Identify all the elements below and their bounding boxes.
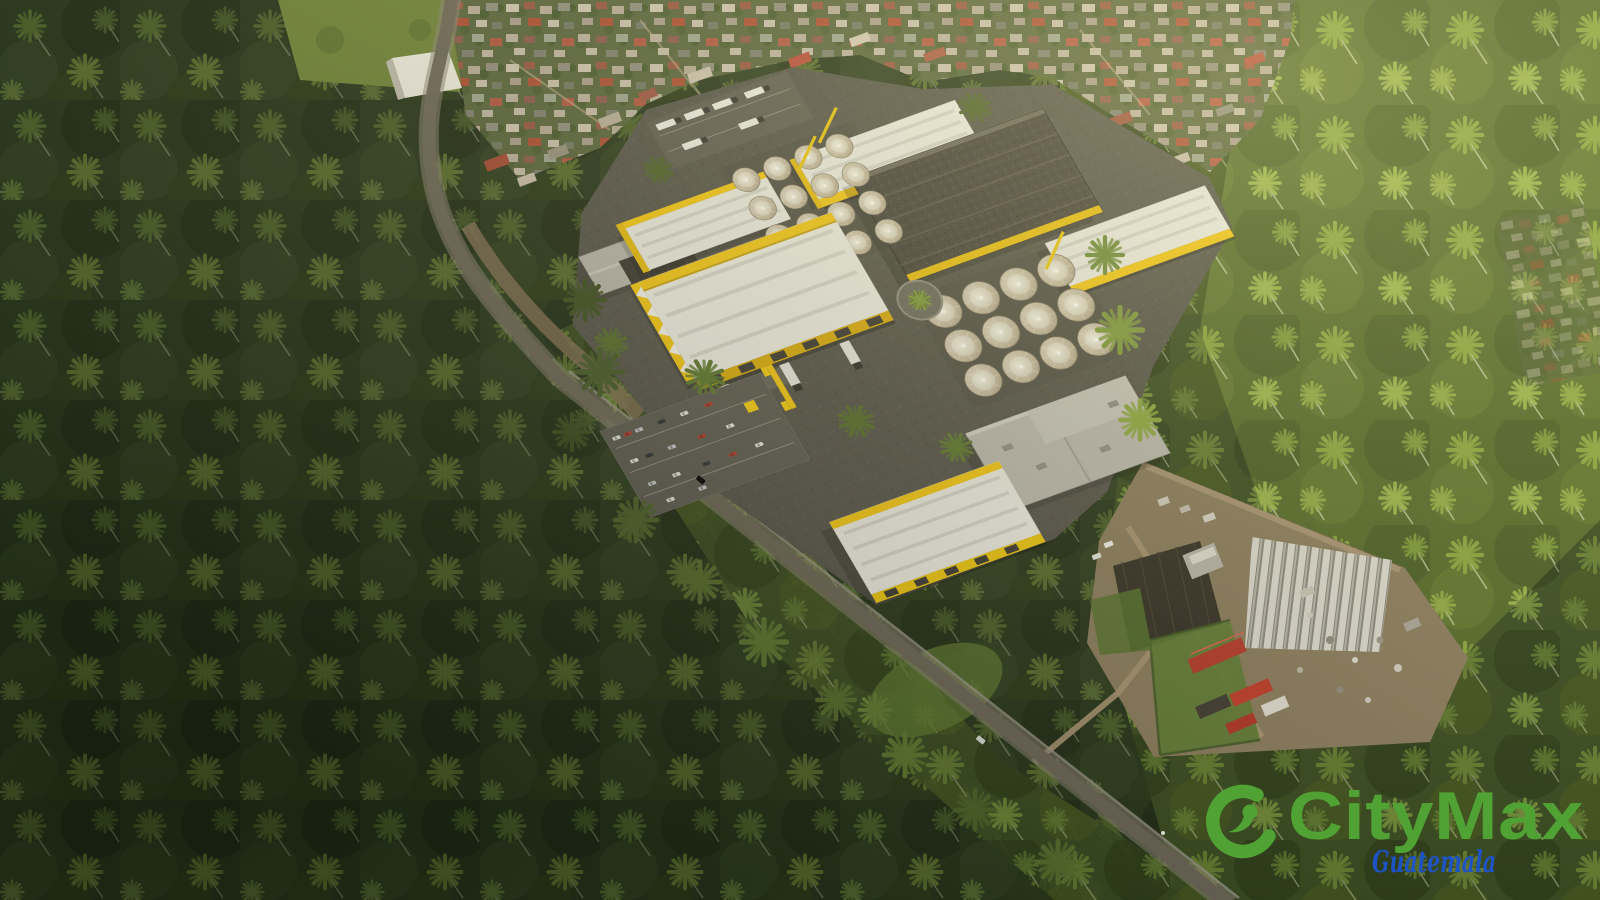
aerial-photo-canvas: CityMax Guatemala (0, 0, 1600, 900)
region-text: Guatemala (1372, 845, 1496, 880)
scene-svg: CityMax Guatemala (0, 0, 1600, 900)
shadow-vignette (0, 0, 1600, 900)
brand-text: CityMax (1288, 778, 1584, 854)
